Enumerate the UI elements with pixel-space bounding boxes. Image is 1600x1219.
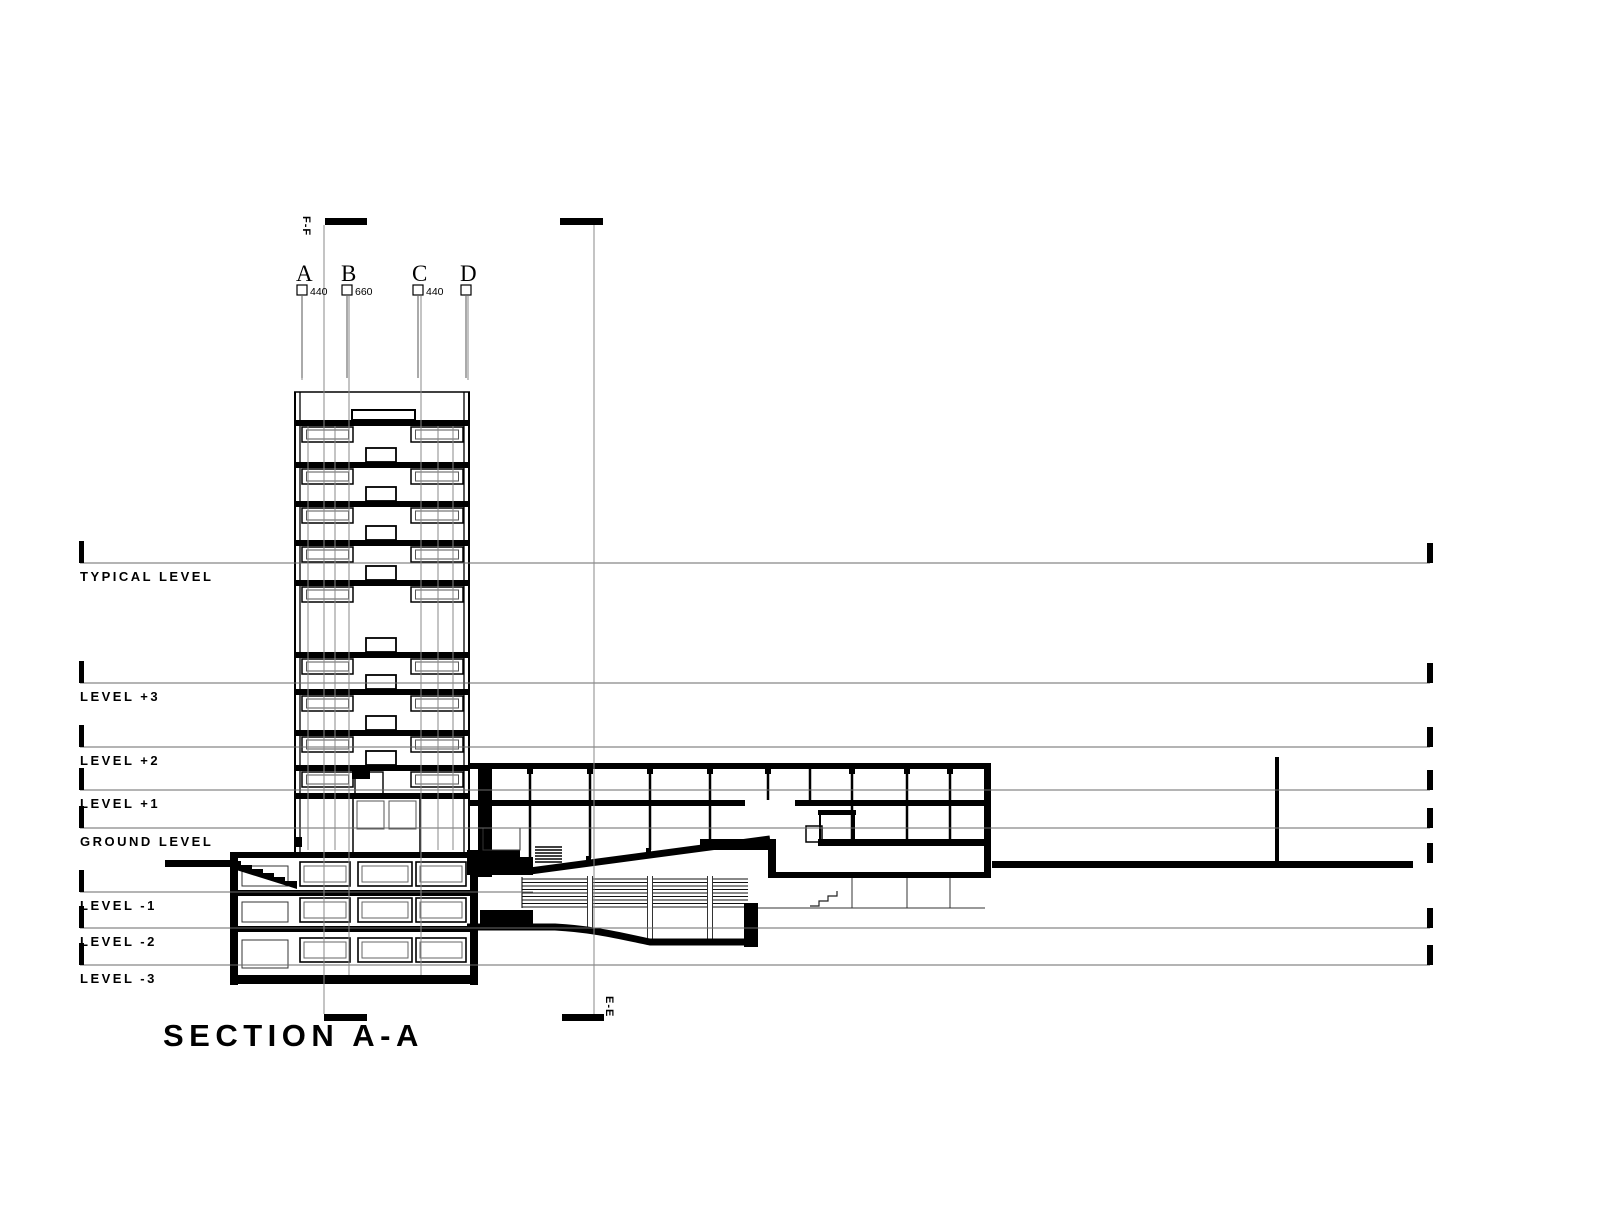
grid-dimension-b: 660 [355,286,373,298]
section-marker-ff-label: F-F [300,216,312,236]
seating-steps [522,877,748,908]
level-label-plus1: LEVEL +1 [80,796,160,811]
building-section [165,392,1413,985]
annotations [79,218,1433,1021]
grid-column-label-d: D [460,261,477,286]
level-ticks-right [1427,543,1433,965]
ground-steps-west [230,861,297,889]
level-label-plus3: LEVEL +3 [80,689,160,704]
lower-slab [467,927,746,942]
roof-penthouse [352,410,415,420]
grid-dimension-c: 440 [426,286,444,298]
level-label-minus2: LEVEL -2 [80,934,157,949]
grid-dimension-a: 440 [310,286,328,298]
level-label-typical: TYPICAL LEVEL [80,569,213,584]
grid-column-label-c: C [412,261,427,286]
podium [470,763,991,878]
grid-column-label-a: A [296,261,313,286]
section-drawing: TYPICAL LEVEL LEVEL +3 LEVEL +2 LEVEL +1… [0,0,1600,1219]
section-marker-ee-label: E-E [603,996,615,1017]
level-label-plus2: LEVEL +2 [80,753,160,768]
tower [294,392,470,852]
section-ee-bar-top [560,218,603,225]
ground-line-east [992,861,1413,868]
section-ee-bar-bottom [562,1014,604,1021]
architectural-section-sheet: TYPICAL LEVEL LEVEL +3 LEVEL +2 LEVEL +1… [0,0,1600,1219]
level-label-ground: GROUND LEVEL [80,834,213,849]
ground-line-west [165,860,230,867]
grid-column-label-b: B [341,261,356,286]
flag-pole [1275,757,1279,861]
east-block [772,810,990,908]
section-ff-bar-top [325,218,367,225]
drawing-title: SECTION A-A [163,1018,424,1053]
level-label-minus1: LEVEL -1 [80,898,157,913]
level-label-minus3: LEVEL -3 [80,971,157,986]
